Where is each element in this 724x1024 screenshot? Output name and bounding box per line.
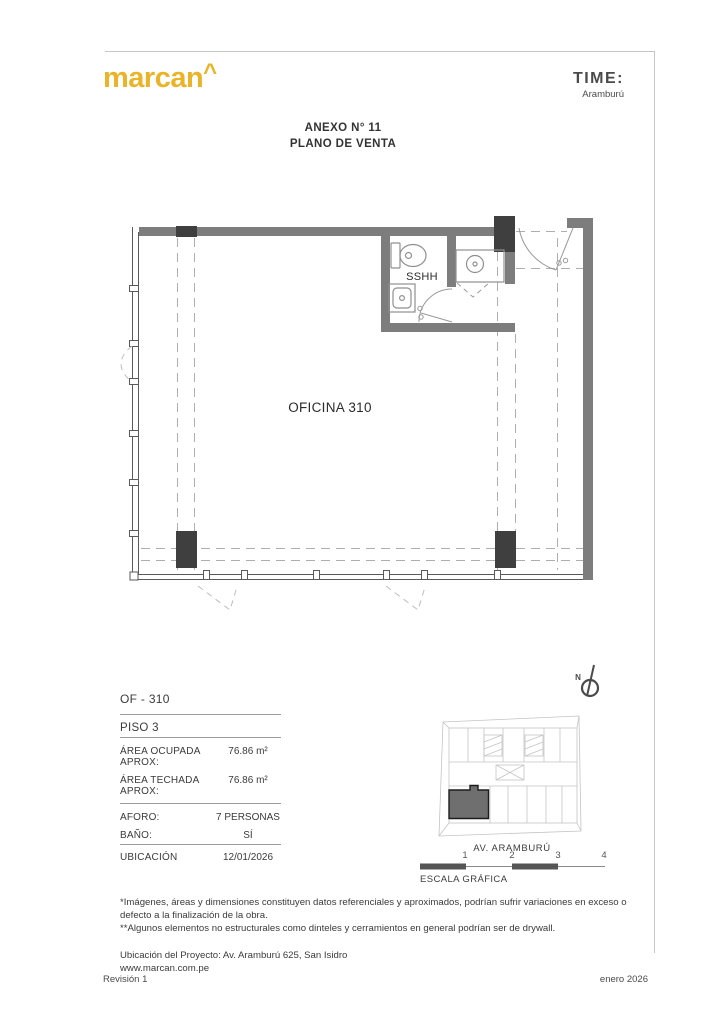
- document-page: marcan^ TIME: Aramburú ANEXO N° 11 PLANO…: [0, 0, 724, 1024]
- ubicacion-value: 12/01/2026: [215, 852, 281, 863]
- table-row: AFORO: 7 PERSONAS: [120, 812, 281, 823]
- table-row: UBICACIÓN 12/01/2026: [120, 852, 281, 863]
- area-ocupada-label: ÁREA OCUPADA APROX:: [120, 746, 215, 768]
- area-techada-value: 76.86 m²: [215, 775, 281, 786]
- brand-subtitle: Aramburú: [573, 89, 624, 100]
- logo-text: marcan: [103, 62, 203, 94]
- table-row: BAÑO: SÍ: [120, 830, 281, 841]
- marcan-logo: marcan^: [103, 62, 217, 95]
- aforo-label: AFORO:: [120, 812, 160, 823]
- table-row: ÁREA TECHADA APROX: 76.86 m²: [120, 775, 281, 797]
- table-divider: [120, 803, 281, 804]
- date-label: enero 2026: [600, 974, 648, 985]
- floor-label: PISO 3: [120, 715, 281, 738]
- bano-value: SÍ: [215, 830, 281, 841]
- brand-name: TIME:: [573, 70, 624, 88]
- bano-label: BAÑO:: [120, 830, 152, 841]
- logo-caret-icon: ^: [203, 59, 217, 86]
- document-title: ANEXO N° 11 PLANO DE VENTA: [103, 120, 583, 152]
- project-brand: TIME: Aramburú: [573, 70, 624, 100]
- note-2: **Algunos elementos no estructurales com…: [120, 922, 632, 935]
- aforo-value: 7 PERSONAS: [215, 812, 281, 823]
- area-techada-label: ÁREA TECHADA APROX:: [120, 775, 215, 797]
- website-url: www.marcan.com.pe: [120, 962, 632, 975]
- annex-title: ANEXO N° 11: [103, 120, 583, 136]
- project-address: Ubicación del Proyecto: Av. Aramburú 625…: [120, 949, 632, 962]
- revision-label: Revisión 1: [103, 974, 147, 985]
- unit-info-table: OF - 310 PISO 3 ÁREA OCUPADA APROX: 76.8…: [120, 692, 281, 863]
- unit-code: OF - 310: [120, 692, 281, 715]
- ubicacion-label: UBICACIÓN: [120, 852, 177, 863]
- area-ocupada-value: 76.86 m²: [215, 746, 281, 757]
- disclaimer-notes: *Imágenes, áreas y dimensiones constituy…: [120, 896, 632, 975]
- note-1: *Imágenes, áreas y dimensiones constituy…: [120, 896, 632, 922]
- table-row: ÁREA OCUPADA APROX: 76.86 m²: [120, 746, 281, 768]
- table-divider: [120, 844, 281, 845]
- plan-title: PLANO DE VENTA: [103, 136, 583, 152]
